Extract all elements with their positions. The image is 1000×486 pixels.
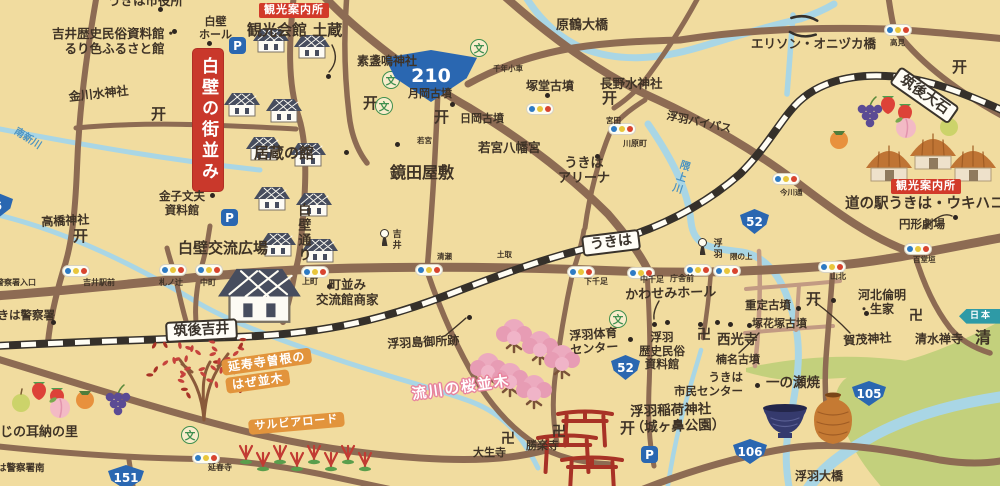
label-ukiha-history-museum: 浮羽 歴史民俗 資料館 — [639, 331, 685, 372]
poi-dot — [395, 142, 400, 147]
label-ukiha-police-station: うきは警察署 — [0, 309, 55, 323]
label-kawakita-michiaki-birthplace: 河北倫明 ・生家 — [858, 288, 906, 316]
poi-dot — [210, 193, 215, 198]
label-kaneko-fumio-museum: 金子文夫 資料館 — [159, 190, 205, 217]
label-shigesada-kofun: 重定古墳 — [745, 299, 791, 313]
traffic-light-icon — [415, 264, 443, 276]
grape-icon — [858, 97, 883, 127]
traffic-light-icon — [62, 265, 90, 277]
strawberry-icon — [32, 382, 46, 400]
parking-icon: P — [641, 446, 658, 463]
label-saikoji-temple: 西光寺 — [717, 333, 758, 349]
label-chitose: 千年小車 — [493, 65, 523, 74]
pottery-bowl-icon — [763, 404, 807, 438]
label-susanoo-shrine: 素盞嗚神社 — [357, 54, 417, 68]
label-shirakabe-street: 白壁通り — [295, 203, 310, 263]
salvia-flowers-icon — [240, 446, 371, 471]
strawberry-icon — [881, 96, 895, 114]
poi-dot — [467, 315, 472, 320]
label-kawaramachi-signal: 川原町 — [623, 139, 647, 148]
label-fudanotsuji-signal: 札ノ辻 — [159, 278, 183, 287]
signpost-icon — [697, 238, 708, 255]
poi-dot — [344, 150, 349, 155]
label-daishoji-temple: 大生寺 — [473, 447, 506, 460]
school-icon: 文 — [470, 39, 488, 57]
signpost-icon — [379, 229, 390, 246]
temple-manji-icon: 卍 — [552, 425, 566, 439]
label-yamakita-signal: 山北 — [830, 272, 846, 281]
station-chikugo-yoshii: 筑後吉井 — [165, 318, 238, 342]
thatched-hut-icon — [910, 134, 956, 169]
traffic-light-icon — [526, 103, 554, 115]
label-enshunji-signal: 延春寺 — [208, 463, 232, 472]
label-tsukioka-kofun: 月岡古墳 — [408, 88, 452, 101]
label-nakasendari-signal: 中千足 — [640, 275, 664, 284]
traffic-light-icon — [159, 264, 187, 276]
label-wakamiya-signal: 若宮 — [417, 137, 432, 146]
label-kumanoue-signal: 隈の上 — [730, 253, 753, 262]
poi-dot — [698, 322, 703, 327]
peach-icon — [49, 396, 70, 418]
poi-dot — [953, 215, 958, 220]
label-shimosendari-signal: 下千足 — [584, 277, 608, 286]
thatched-hut-icon — [866, 146, 912, 181]
ribbon-nihon: 日本 — [959, 309, 1000, 324]
label-miyata-signal: 宮田 — [606, 117, 621, 126]
label-tsuchitori-signal: 土取 — [497, 251, 512, 260]
label-enkei-gekijo: 円形劇場 — [899, 218, 945, 232]
persimmon-icon — [76, 391, 94, 409]
label-ellison-onizuka-bridge: エリソン・オニヅカ橋 — [751, 37, 876, 52]
label-wakamiya-hachimangu: 若宮八幡宮 — [478, 141, 541, 156]
poi-dot — [628, 337, 633, 342]
torii-icon: 开 — [73, 229, 88, 244]
label-kanko-kaikan-dozo: 観光会館 土蔵 — [247, 22, 342, 40]
label-michinoeki-ukiha-ukihako: 道の駅うきは・ウキハコ — [845, 196, 1000, 213]
label-police-south-signal: うきは警察署南 — [0, 463, 45, 474]
label-takami-signal: 高見 — [890, 39, 905, 48]
parking-icon: P — [221, 209, 238, 226]
label-kiyose-signal: 清瀬 — [437, 253, 452, 262]
label-ukiha-gym-center: 浮羽体育 センター — [569, 326, 619, 358]
temple-manji-icon: 卍 — [909, 309, 923, 323]
peach-icon — [895, 116, 916, 138]
label-police-entrance-signal: 警察署入口 — [0, 278, 36, 287]
torii-icon: 开 — [434, 110, 449, 125]
label-igura-no-yakata: 居蔵の館 — [254, 145, 314, 163]
poi-dot — [450, 102, 455, 107]
label-ukiha-city-hall: うきは市役所 — [108, 0, 183, 9]
label-nagano-water-shrine: 長野水神社 — [600, 77, 663, 92]
label-hioka-kofun: 日岡古墳 — [460, 113, 504, 126]
traffic-light-icon — [884, 24, 912, 36]
label-kawasemi-hall: かわせみホール — [625, 285, 716, 303]
poi-dot — [665, 320, 670, 325]
traffic-light-icon — [301, 266, 329, 278]
label-shimizu-zenji-temple: 清水禅寺 — [915, 332, 963, 346]
traffic-light-icon — [192, 452, 220, 464]
label-ukiha-arena: うきは アリーナ — [558, 156, 610, 187]
badge-tourist-info-yoshii: 観光案内所 — [259, 3, 329, 18]
label-ukiha-inari-shrine: 浮羽稲荷神社 （城ヶ鼻公園） — [630, 402, 726, 437]
label-shimizu-partial: 清 — [975, 329, 991, 348]
label-harazuru-bridge: 原鶴大橋 — [556, 18, 608, 33]
poi-dot — [715, 320, 720, 325]
badge-tourist-info-ukiha: 観光案内所 — [891, 179, 961, 194]
poi-dot — [755, 383, 760, 388]
red-torii-gate-icon — [562, 458, 622, 486]
traffic-light-icon — [818, 261, 846, 273]
traffic-light-icon — [772, 173, 800, 185]
label-chosha-mae-signal: 庁舎前 — [670, 274, 694, 283]
temple-manji-icon: 卍 — [697, 328, 711, 342]
torii-icon: 开 — [806, 292, 821, 307]
label-ukiha-ohashi-bridge: 浮羽大橋 — [795, 469, 843, 483]
kura-house-icon — [254, 187, 290, 210]
label-machinami-koryukan-shoka: 町並み 交流館商家 — [316, 278, 379, 308]
kura-house-icon — [224, 93, 260, 116]
thatched-hut-icon — [950, 146, 996, 181]
poi-dot — [545, 93, 550, 98]
poi-dot — [652, 322, 657, 327]
label-yoshii-signpost: 吉井 — [390, 229, 401, 251]
school-icon: 文 — [375, 97, 393, 115]
pear-icon — [12, 389, 30, 412]
label-takahashi-shrine: 高橋神社 — [41, 212, 90, 229]
torii-icon: 开 — [151, 107, 166, 122]
label-yoshii-ekimae-signal: 吉井駅前 — [83, 278, 115, 287]
label-ukiha-signpost: 浮羽 — [711, 238, 722, 260]
traffic-light-icon — [195, 264, 223, 276]
traffic-light-icon — [713, 265, 741, 277]
poi-dot — [728, 322, 733, 327]
label-yoshii-history-museum: 吉井歴史民俗資料館・ るり色ふるさと館 — [52, 27, 177, 57]
torii-icon: 开 — [602, 91, 617, 106]
poi-dot — [796, 306, 801, 311]
label-tsukando-kofun: 塚堂古墳 — [526, 79, 574, 93]
label-hyakudogaki-signal: 百堂垣 — [913, 256, 936, 265]
poi-dot — [831, 298, 836, 303]
poi-dot — [326, 74, 331, 79]
label-kagamida-yashiki: 鏡田屋敷 — [390, 164, 454, 183]
label-tsukahanazuka-kofun: 塚花塚古墳 — [752, 318, 807, 331]
temple-manji-icon: 卍 — [501, 432, 515, 446]
traffic-light-icon — [567, 266, 595, 278]
torii-icon: 开 — [952, 60, 967, 75]
label-imagawa-signal: 今川通 — [780, 189, 803, 198]
label-ichinose-pottery: 一の瀬焼 — [766, 376, 820, 392]
label-shorakuji-temple: 勝楽寺 — [526, 440, 559, 453]
label-shirakabe-plaza: 白壁交流広場 — [178, 240, 268, 258]
persimmon-icon — [830, 131, 848, 149]
banner-shirakabe-townscape: 白壁の街並み — [193, 49, 223, 191]
label-kusuna-kofun: 楠名古墳 — [716, 354, 760, 367]
traffic-light-icon — [904, 243, 932, 255]
label-nakamachi-signal: 中町 — [200, 278, 216, 287]
ukiha-illustrated-map: うきは市役所吉井歴史民俗資料館・ るり色ふるさと館白壁 ホール金川水神社観光案内… — [0, 0, 1000, 486]
school-icon: 文 — [181, 426, 199, 444]
label-shirakabe-hall: 白壁 ホール — [199, 16, 232, 42]
label-ukiha-citizen-center: うきは 市民センター — [674, 371, 743, 398]
label-niji-minou-no-sato: にじの耳納の里 — [0, 425, 78, 440]
